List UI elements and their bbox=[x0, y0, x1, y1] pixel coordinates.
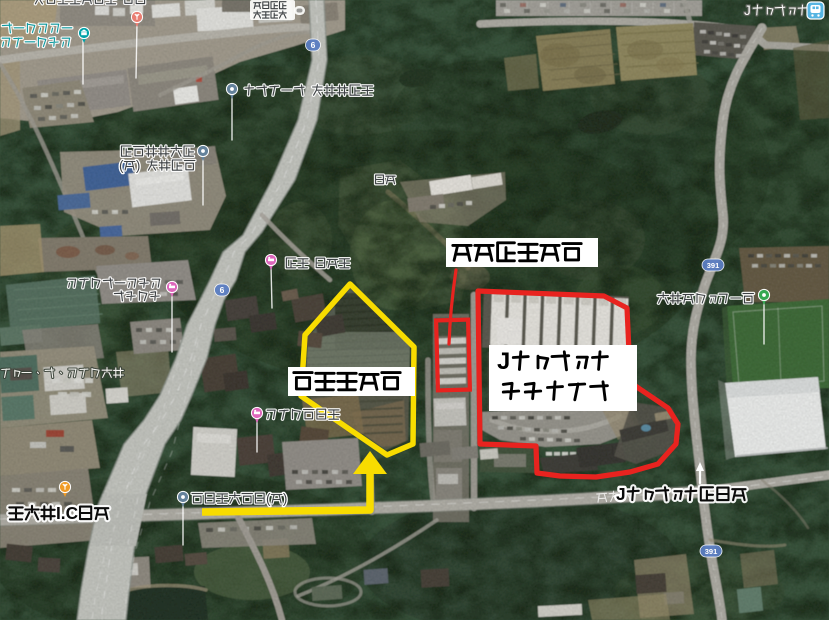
svg-text:(: ( bbox=[266, 491, 271, 506]
svg-text:6: 6 bbox=[220, 285, 225, 295]
svg-text:J: J bbox=[497, 348, 510, 375]
svg-text:6: 6 bbox=[311, 40, 316, 50]
svg-text:(: ( bbox=[119, 158, 124, 173]
svg-text:391: 391 bbox=[707, 261, 720, 270]
svg-text:): ) bbox=[136, 158, 141, 173]
svg-text:391: 391 bbox=[705, 547, 718, 556]
svg-text:I.C: I.C bbox=[56, 503, 78, 523]
svg-text:J: J bbox=[744, 3, 751, 18]
svg-text:): ) bbox=[283, 491, 288, 506]
svg-text:J: J bbox=[616, 484, 626, 504]
